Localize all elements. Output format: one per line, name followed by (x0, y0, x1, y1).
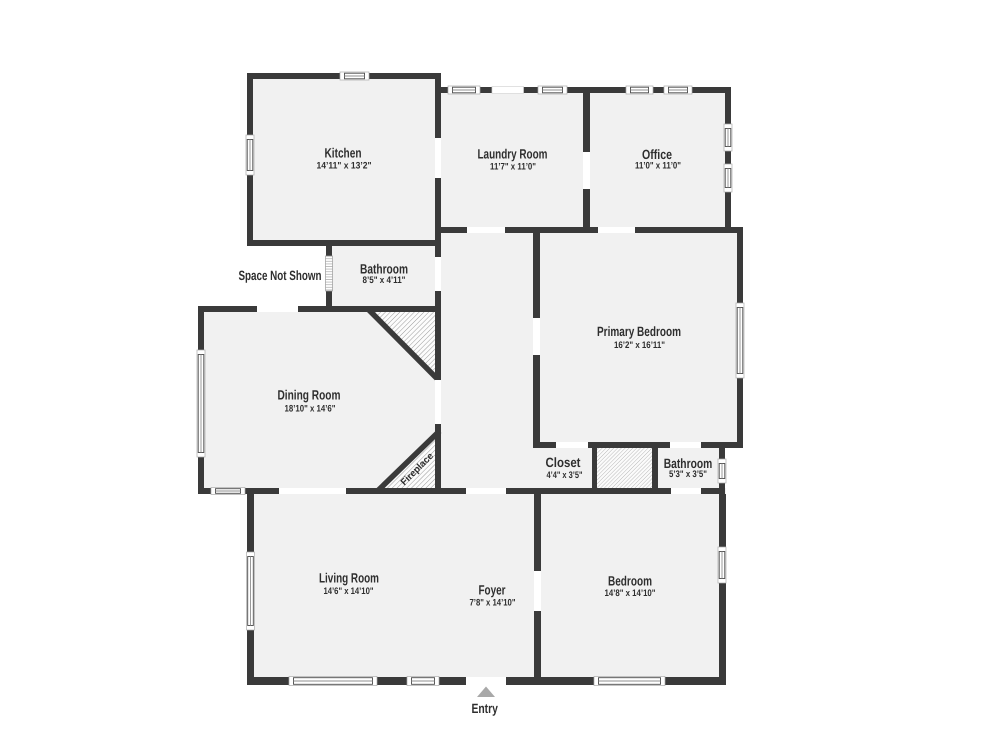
svg-text:5’3" x 3’5": 5’3" x 3’5" (669, 469, 707, 480)
svg-text:14’8" x 14’10": 14’8" x 14’10" (605, 588, 656, 599)
svg-text:Kitchen: Kitchen (325, 146, 362, 161)
svg-text:Space Not Shown: Space Not Shown (239, 268, 322, 283)
svg-text:Living Room: Living Room (319, 570, 379, 585)
svg-text:Bedroom: Bedroom (608, 573, 652, 588)
svg-text:14’11" x 13’2": 14’11" x 13’2" (317, 161, 372, 172)
svg-text:7’8" x 14’10": 7’8" x 14’10" (470, 598, 516, 609)
svg-text:Dining Room: Dining Room (278, 387, 341, 402)
svg-text:16’2" x 16’11": 16’2" x 16’11" (614, 340, 665, 351)
svg-text:Closet: Closet (546, 455, 581, 470)
svg-text:Entry: Entry (471, 701, 498, 716)
svg-text:8’5" x 4’11": 8’5" x 4’11" (363, 275, 406, 286)
svg-text:4’4" x 3’5": 4’4" x 3’5" (547, 470, 583, 481)
svg-text:14’6" x 14’10": 14’6" x 14’10" (324, 586, 374, 597)
svg-text:Laundry Room: Laundry Room (478, 146, 548, 161)
svg-text:Foyer: Foyer (479, 582, 507, 597)
svg-text:18’10" x 14’6": 18’10" x 14’6" (285, 404, 336, 415)
svg-text:Primary Bedroom: Primary Bedroom (597, 324, 681, 339)
svg-text:11’0" x 11’0": 11’0" x 11’0" (635, 161, 681, 172)
svg-text:11’7" x 11’0": 11’7" x 11’0" (490, 162, 536, 173)
